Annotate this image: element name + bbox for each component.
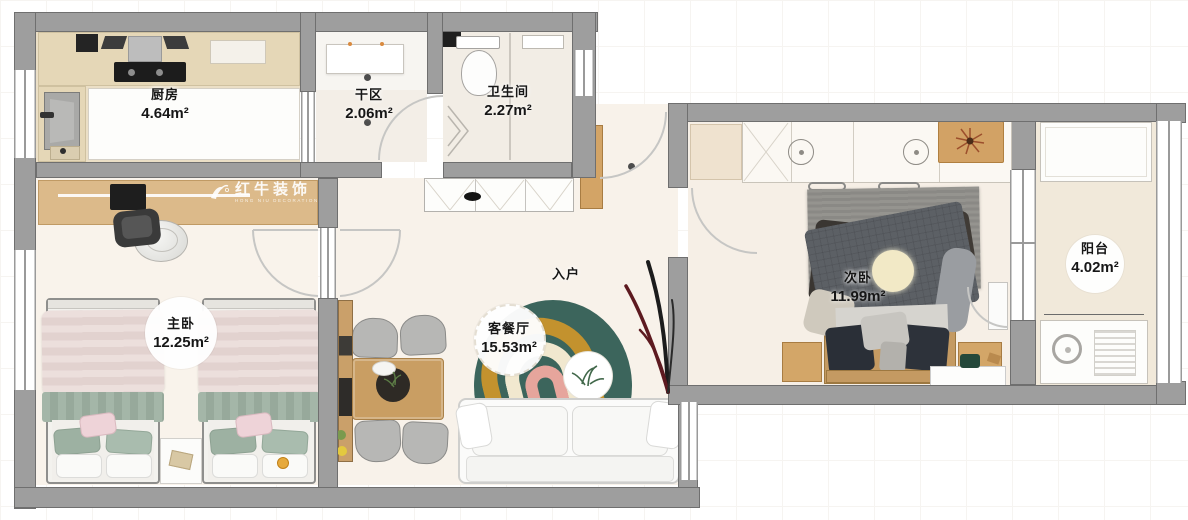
bed2-pillow-small: [879, 341, 907, 373]
wall-bath-bottom: [443, 162, 572, 178]
wall-dry-bottom: [300, 162, 382, 178]
room-name: 客餐厅: [481, 318, 537, 337]
measure-line: [1044, 314, 1144, 315]
wall-dry-bath: [427, 12, 443, 94]
nightstand-left: [782, 342, 822, 382]
vent-grille: [1094, 330, 1136, 376]
monitor-icon: [110, 184, 146, 210]
fridge-icon: [76, 34, 98, 52]
watermark-tagline: HONG NIU DECORATION: [235, 199, 319, 204]
divider-stub-bottom: [1010, 320, 1036, 385]
sewing-machine-icon: [960, 354, 980, 368]
room-area: 4.64m²: [141, 105, 189, 122]
window-kitchen: [14, 70, 36, 158]
entry-side-cabinet: [690, 124, 742, 180]
wall-rightblock-left-lower: [668, 257, 688, 387]
hood-vent-right: [163, 36, 189, 49]
room-area: 2.06m²: [345, 105, 393, 122]
dining-chair: [399, 314, 447, 356]
master-bed-left: [46, 298, 160, 484]
bedroom2-desk: [938, 121, 1004, 163]
dining-chair: [401, 421, 449, 465]
floor-lamp-icon: [277, 457, 289, 469]
room-name: 主卧: [153, 313, 209, 332]
wall-bottom-left-block: [14, 487, 700, 508]
plate: [372, 361, 396, 376]
room-area: 15.53m²: [481, 339, 537, 356]
toilet-tank: [456, 36, 500, 49]
room-area: 11.99m²: [830, 288, 885, 305]
room-label-living-dining: 客餐厅 15.53m²: [481, 318, 537, 356]
room-name: 干区: [345, 84, 393, 103]
room-label-second-bedroom: 次卧 11.99m²: [830, 267, 885, 305]
room-name: 次卧: [830, 267, 885, 286]
cabinet-handle-dot: [464, 192, 481, 201]
dining-chair: [351, 317, 398, 359]
kitchen-shelf: [210, 40, 266, 64]
watermark: 红牛装饰 HONG NIU DECORATION: [208, 182, 319, 204]
wall-rightblock-left-upper: [668, 103, 688, 188]
wall-balcony-corner-top: [1156, 103, 1186, 123]
sofa: [458, 398, 680, 484]
shoe-cabinet: [424, 178, 574, 212]
bedroom2-dresser: [988, 282, 1008, 330]
room-area: 4.02m²: [1071, 259, 1119, 276]
bed2-bench: [930, 366, 1006, 386]
wall-rightblock-bottom: [668, 385, 1186, 405]
divider-stub-top: [1010, 121, 1036, 170]
window-living-east-glass: [680, 402, 698, 480]
wall-rightblock-top: [668, 103, 1168, 122]
washing-machine-icon: [1052, 334, 1082, 364]
tap-dot-left: [348, 42, 352, 46]
room-label-kitchen: 厨房 4.64m²: [141, 84, 189, 122]
sink-drain-dot: [60, 148, 66, 154]
room-entry: [596, 104, 678, 180]
kitchen-sink: [44, 92, 80, 150]
wall-kitchen-bottom: [36, 162, 316, 178]
room-name: 厨房: [141, 84, 189, 103]
ceiling-dot-dry-1: [364, 74, 371, 81]
bath-shelf: [522, 35, 564, 49]
room-label-master-bedroom: 主卧 12.25m²: [153, 313, 209, 351]
room-label-balcony: 阳台 4.02m²: [1071, 238, 1119, 276]
faucet-icon: [40, 112, 54, 118]
desk-chair: [112, 208, 162, 249]
floor-plan: 红牛装饰 HONG NIU DECORATION: [0, 0, 1188, 520]
hood-vent-left: [101, 36, 127, 49]
room-label-dry-area: 干区 2.06m²: [345, 84, 393, 122]
washbasin-counter: [326, 44, 404, 74]
master-door-leaf: [320, 228, 336, 298]
room-label-entry: 入户: [552, 264, 580, 283]
watermark-brand: 红牛装饰: [235, 182, 319, 197]
cooktop: [114, 62, 186, 82]
wall-master-living-top: [318, 178, 338, 228]
wall-kitchen-dry: [300, 12, 316, 92]
window-balcony: [1156, 121, 1182, 383]
window-master: [14, 250, 36, 390]
pocket-door-kitchen: [301, 92, 315, 162]
wall-master-living-bottom: [318, 298, 338, 488]
tap-dot-right: [380, 42, 384, 46]
rug-plant-circle: [564, 352, 612, 400]
room-area: 12.25m²: [153, 334, 209, 351]
window-bathroom: [574, 50, 594, 96]
wall-balcony-corner-bottom: [1156, 381, 1186, 405]
room-area: 2.27m²: [484, 102, 532, 119]
brand-logo-icon: [208, 182, 230, 204]
balcony-cabinet: [1040, 122, 1152, 182]
hanger-symbol: [903, 139, 929, 165]
room-label-bathroom: 卫生间 2.27m²: [484, 81, 532, 119]
master-bed-right: [202, 298, 316, 484]
kitchen-island: [88, 88, 300, 160]
room-name: 入户: [552, 264, 580, 283]
room-name: 阳台: [1071, 238, 1119, 257]
sliding-door-balcony: [1010, 170, 1036, 320]
hanger-symbol: [788, 139, 814, 165]
sideboard-flower-icon: [337, 446, 347, 456]
room-name: 卫生间: [484, 81, 532, 100]
ceiling-dot-entry: [628, 163, 635, 170]
range-hood: [128, 36, 162, 62]
